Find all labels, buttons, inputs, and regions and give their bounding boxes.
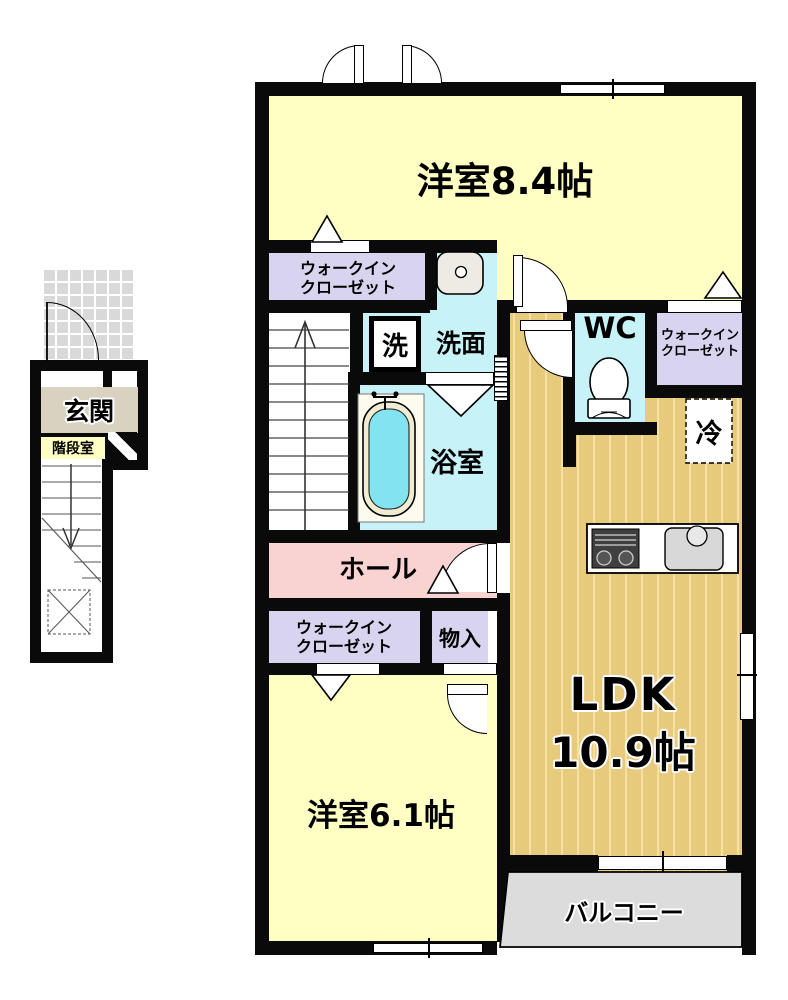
label-refrigerator: 冷 bbox=[686, 400, 732, 462]
label-wc: WC bbox=[573, 310, 647, 346]
label-entrance: 玄関 bbox=[48, 394, 130, 426]
label-wic-right: ウォークイン クローゼット bbox=[657, 326, 743, 362]
label-ldk-size: 10.9帖 bbox=[503, 722, 743, 776]
stairs-2f-arrow bbox=[295, 322, 315, 530]
triangle-wic-top-door bbox=[312, 216, 342, 242]
bathtub bbox=[358, 391, 424, 522]
kitchen-sink bbox=[665, 526, 723, 570]
label-ldk: LDK bbox=[523, 668, 723, 720]
triangle-bed61-closet-door bbox=[312, 675, 350, 700]
label-bedroom61: 洋室6.1帖 bbox=[276, 790, 486, 834]
label-bathroom: 浴室 bbox=[419, 444, 495, 476]
label-wic-top: ウォークイン クローゼット bbox=[278, 258, 418, 298]
label-hall: ホール bbox=[308, 551, 448, 583]
floor-plan: 洋室8.4帖 ウォークイン クローゼット 洗 洗面 WC ウォークイン クローゼ… bbox=[0, 0, 788, 1000]
label-wic-lower: ウォークイン クローゼット bbox=[272, 616, 416, 658]
label-stairwell: 階段室 bbox=[41, 437, 105, 459]
label-bedroom84: 洋室8.4帖 bbox=[375, 153, 635, 203]
triangle-bath-door bbox=[428, 385, 493, 416]
gas-stove bbox=[592, 529, 639, 568]
label-washroom: 洗面 bbox=[424, 326, 498, 358]
fixtures-overlay bbox=[0, 0, 788, 1000]
stairs-1f-void-box bbox=[48, 590, 90, 634]
label-storage: 物入 bbox=[432, 624, 488, 652]
stairs-1f-arrow bbox=[63, 464, 79, 548]
label-laundry: 洗 bbox=[369, 318, 421, 370]
stairs-2f-steps bbox=[269, 330, 349, 510]
kitchen-counter bbox=[587, 524, 738, 573]
triangle-wic-right-door bbox=[705, 272, 741, 298]
washroom-sink bbox=[437, 252, 483, 294]
toilet bbox=[588, 358, 630, 418]
label-balcony: バルコニー bbox=[524, 894, 724, 926]
